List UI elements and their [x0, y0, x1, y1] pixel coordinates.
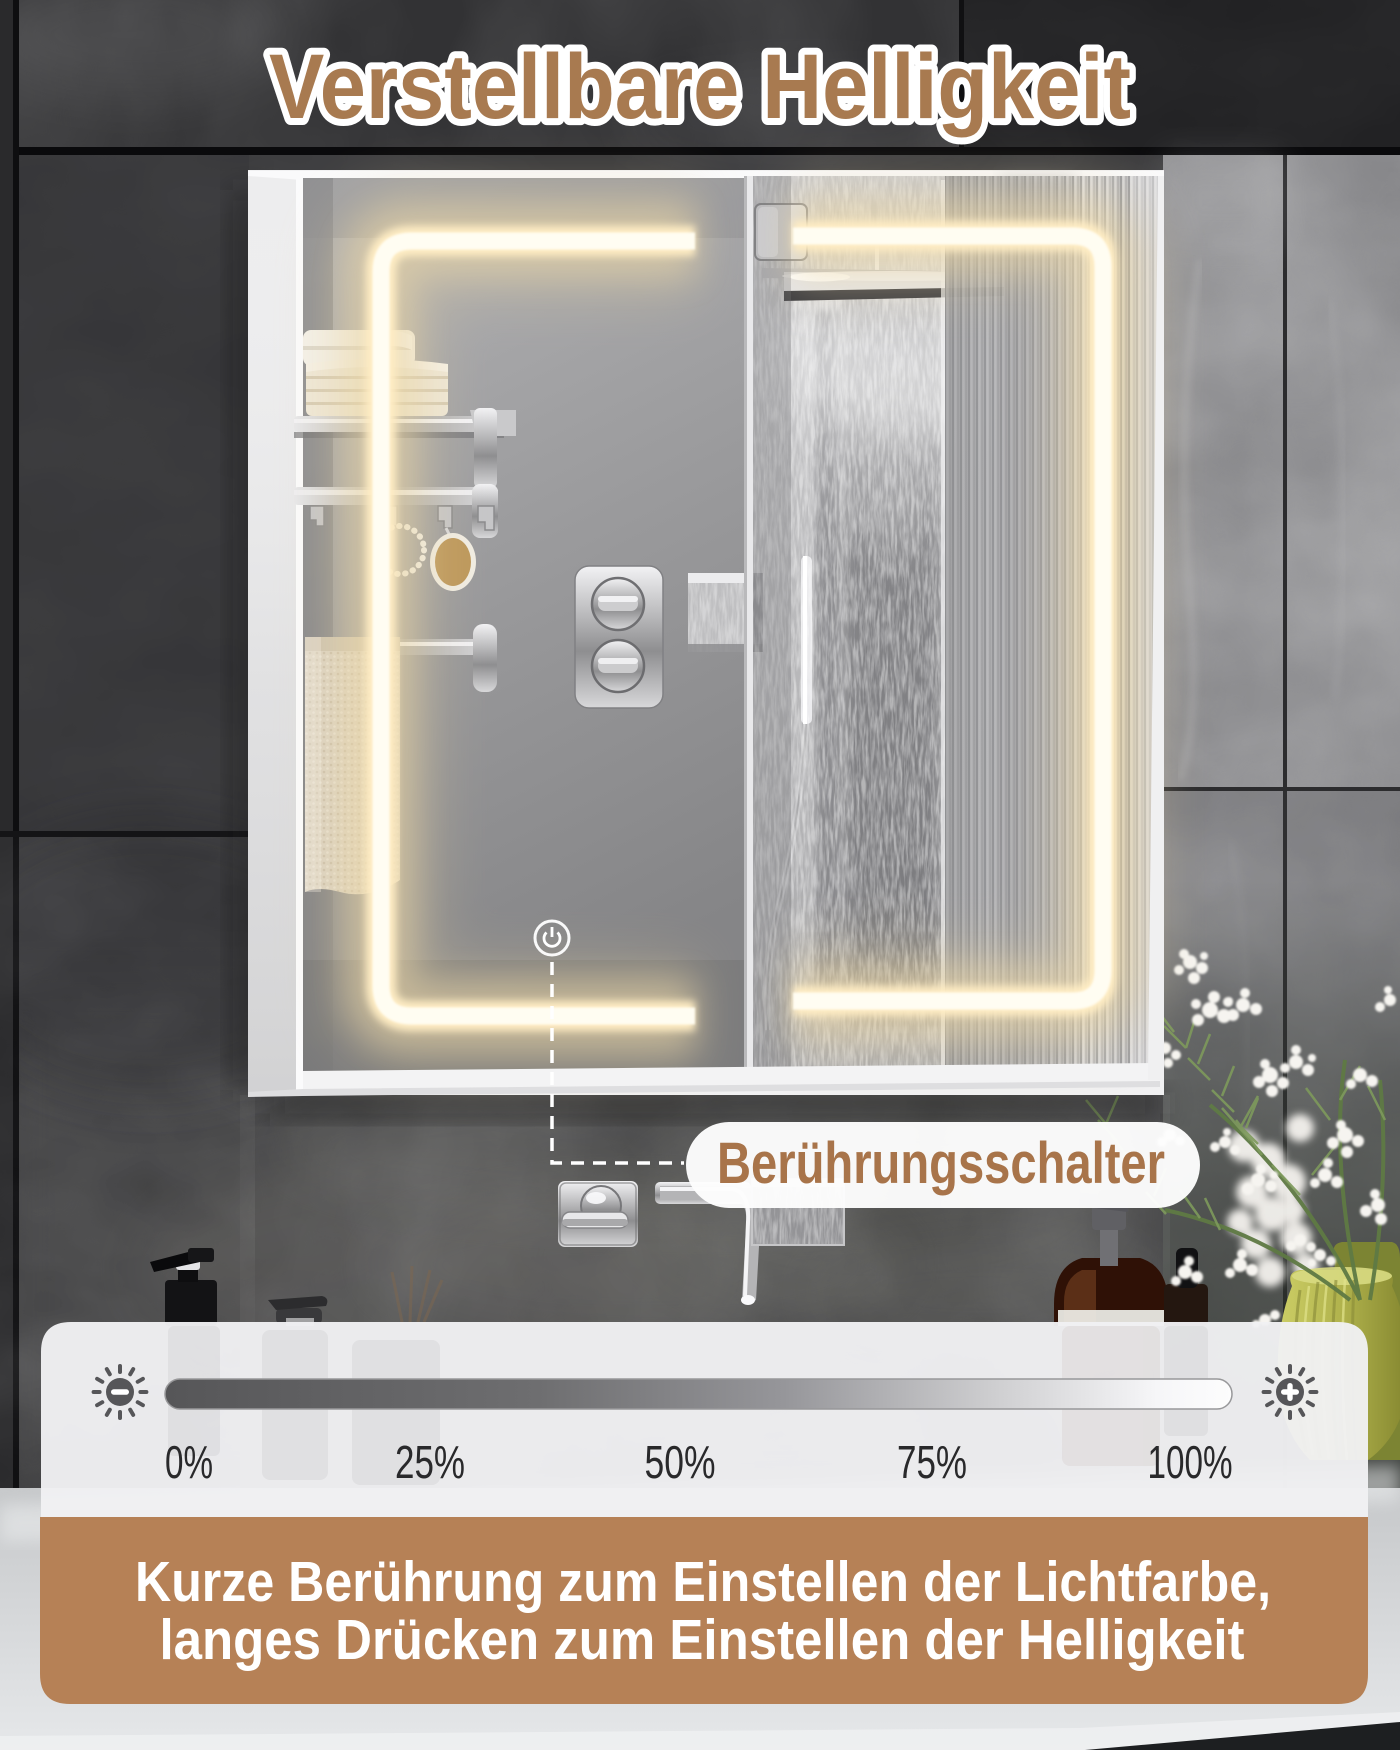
svg-text:Kurze Berührung zum Einstellen: Kurze Berührung zum Einstellen der Licht… [135, 1550, 1271, 1614]
svg-text:Berührungsschalter: Berührungsschalter [717, 1131, 1165, 1196]
svg-text:100%: 100% [1148, 1436, 1233, 1488]
svg-text:0%: 0% [165, 1436, 213, 1488]
svg-text:Verstellbare Helligkeit: Verstellbare Helligkeit [269, 36, 1131, 138]
svg-text:25%: 25% [395, 1436, 465, 1488]
svg-text:langes Drücken zum Einstellen: langes Drücken zum Einstellen der Hellig… [160, 1608, 1245, 1672]
svg-text:75%: 75% [897, 1436, 967, 1488]
svg-text:50%: 50% [645, 1436, 716, 1488]
